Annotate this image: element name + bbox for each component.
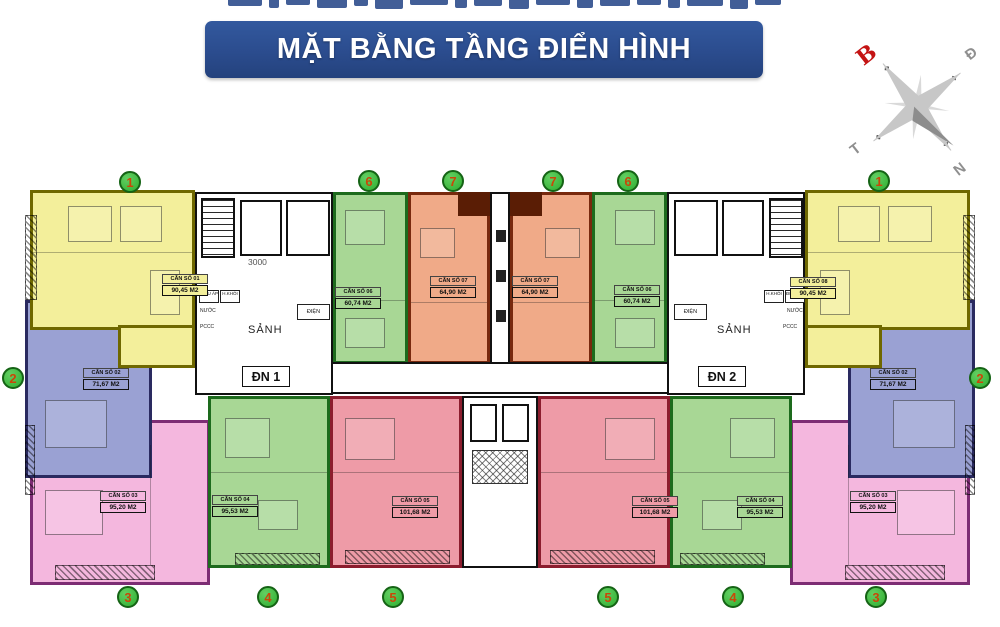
title-banner: MẶT BẰNG TẦNG ĐIỂN HÌNH (205, 21, 763, 78)
type-circle: 6 (617, 170, 639, 192)
type-circle: 7 (442, 170, 464, 192)
furniture (345, 210, 385, 245)
compass-rose-icon: B Đ T N (826, 16, 1000, 198)
furniture (702, 500, 742, 530)
elevator-shaft (470, 404, 497, 442)
fire-room-label: PCCC (783, 324, 797, 330)
balcony-hatch (55, 565, 155, 580)
balcony-hatch (845, 565, 945, 580)
lobby-label: SẢNH (248, 324, 283, 336)
balcony-hatch (345, 550, 450, 564)
room-divider (673, 472, 789, 473)
electric-room-label: ĐIỆN (297, 304, 330, 320)
type-circle: 3 (865, 586, 887, 608)
furniture (838, 206, 880, 242)
shaft-room (286, 200, 330, 256)
type-circle: 1 (119, 171, 141, 193)
furniture (120, 206, 162, 242)
smoke-duct-label: H.KHÓI (764, 290, 784, 303)
type-circle: 7 (542, 170, 564, 192)
furniture (897, 490, 955, 535)
type-circle: 2 (2, 367, 24, 389)
furniture (730, 418, 775, 458)
furniture (615, 210, 655, 245)
furniture (345, 318, 385, 348)
elevator-core (462, 396, 538, 568)
dimension-label: 3000 (248, 257, 267, 267)
unit-label-green-bottom-right: CĂN SỐ 0495,53 M2 (737, 496, 783, 518)
compass-east-label: Đ (962, 44, 981, 64)
compass-south-label: N (950, 159, 969, 179)
core-left: 3000 ĐIỀU ÁP H.KHÓI NƯỚC PCCC ĐIỆN SẢNH (195, 192, 333, 395)
furniture (45, 490, 103, 535)
furniture (893, 400, 955, 448)
shaft-room (240, 200, 282, 256)
balcony-hatch (965, 425, 975, 495)
balcony-hatch (25, 425, 35, 495)
elevator-shaft (502, 404, 529, 442)
unit-label-green-top-right: CĂN SỐ 0660,74 M2 (614, 285, 660, 307)
unit-label-green-bottom-left: CĂN SỐ 0495,53 M2 (212, 495, 258, 517)
compass-star-icon (826, 16, 1000, 198)
furniture (345, 418, 395, 460)
shaft-room (674, 200, 718, 256)
shaft-block (496, 270, 506, 282)
type-circle: 4 (257, 586, 279, 608)
furniture (545, 228, 580, 258)
furniture (258, 500, 298, 530)
unit-label-red-right: CĂN SỐ 05101,68 M2 (632, 496, 678, 518)
balcony-hatch (680, 553, 765, 565)
core-stair-hatch (472, 450, 528, 484)
type-circle: 4 (722, 586, 744, 608)
water-room-label: NƯỚC (787, 308, 803, 314)
corridor (333, 362, 667, 394)
core-right: H.KHÓI ĐIỀU ÁP NƯỚC PCCC ĐIỆN SẢNH (667, 192, 805, 395)
unit-yellow-left-extension (118, 325, 195, 368)
unit-label-blue-right: CĂN SỐ 0271,67 M2 (870, 368, 916, 390)
balcony-hatch (235, 553, 320, 565)
fire-room-label: PCCC (200, 324, 214, 330)
page-title: MẶT BẰNG TẦNG ĐIỂN HÌNH (277, 33, 691, 66)
room-divider (211, 472, 327, 473)
orange-right-service-block (510, 192, 542, 216)
unit-label-pink-left: CĂN SỐ 0395,20 M2 (100, 491, 146, 513)
orange-left-service-block (458, 192, 490, 216)
electric-room-label: ĐIỆN (674, 304, 707, 320)
room-divider (33, 252, 192, 253)
furniture (420, 228, 455, 258)
furniture (605, 418, 655, 460)
type-circle: 2 (969, 367, 991, 389)
type-circle: 5 (382, 586, 404, 608)
room-divider (541, 472, 667, 473)
furniture (615, 318, 655, 348)
room-divider (848, 445, 849, 565)
balcony-hatch (25, 215, 37, 300)
shaft-block (496, 230, 506, 242)
unit-label-orange-left: CĂN SỐ 0764,90 M2 (430, 276, 476, 298)
unit-label-yellow-left: CĂN SỐ 0190,45 M2 (162, 274, 208, 296)
stairwell-right (769, 198, 803, 258)
shaft-room (722, 200, 764, 256)
room-divider (513, 302, 589, 303)
smoke-duct-label: H.KHÓI (220, 290, 240, 303)
water-room-label: NƯỚC (200, 308, 216, 314)
type-circle: 5 (597, 586, 619, 608)
cropped-title-fragments (228, 0, 873, 11)
floor-plan-page: MẶT BẰNG TẦNG ĐIỂN HÌNH B Đ T N (0, 0, 1000, 627)
room-divider (333, 472, 459, 473)
furniture (68, 206, 112, 242)
entrance-dn1-label: ĐN 1 (242, 366, 290, 387)
unit-label-yellow-right: CĂN SỐ 0890,45 M2 (790, 277, 836, 299)
center-shaft-column (490, 192, 510, 364)
unit-yellow-right-extension (805, 325, 882, 368)
furniture (225, 418, 270, 458)
type-circle: 6 (358, 170, 380, 192)
lobby-label: SẢNH (717, 324, 752, 336)
balcony-hatch (550, 550, 655, 564)
balcony-hatch (963, 215, 975, 300)
furniture (45, 400, 107, 448)
furniture (888, 206, 932, 242)
room-divider (411, 302, 487, 303)
unit-label-green-top-left: CĂN SỐ 0660,74 M2 (335, 287, 381, 309)
stairwell-left (201, 198, 235, 258)
unit-label-red-left: CĂN SỐ 05101,68 M2 (392, 496, 438, 518)
type-circle: 1 (868, 170, 890, 192)
unit-label-pink-right: CĂN SỐ 0395,20 M2 (850, 491, 896, 513)
unit-label-orange-right: CĂN SỐ 0764,90 M2 (512, 276, 558, 298)
room-divider (150, 445, 151, 565)
room-divider (808, 252, 967, 253)
shaft-block (496, 310, 506, 322)
unit-label-blue-left: CĂN SỐ 0271,67 M2 (83, 368, 129, 390)
type-circle: 3 (117, 586, 139, 608)
entrance-dn2-label: ĐN 2 (698, 366, 746, 387)
